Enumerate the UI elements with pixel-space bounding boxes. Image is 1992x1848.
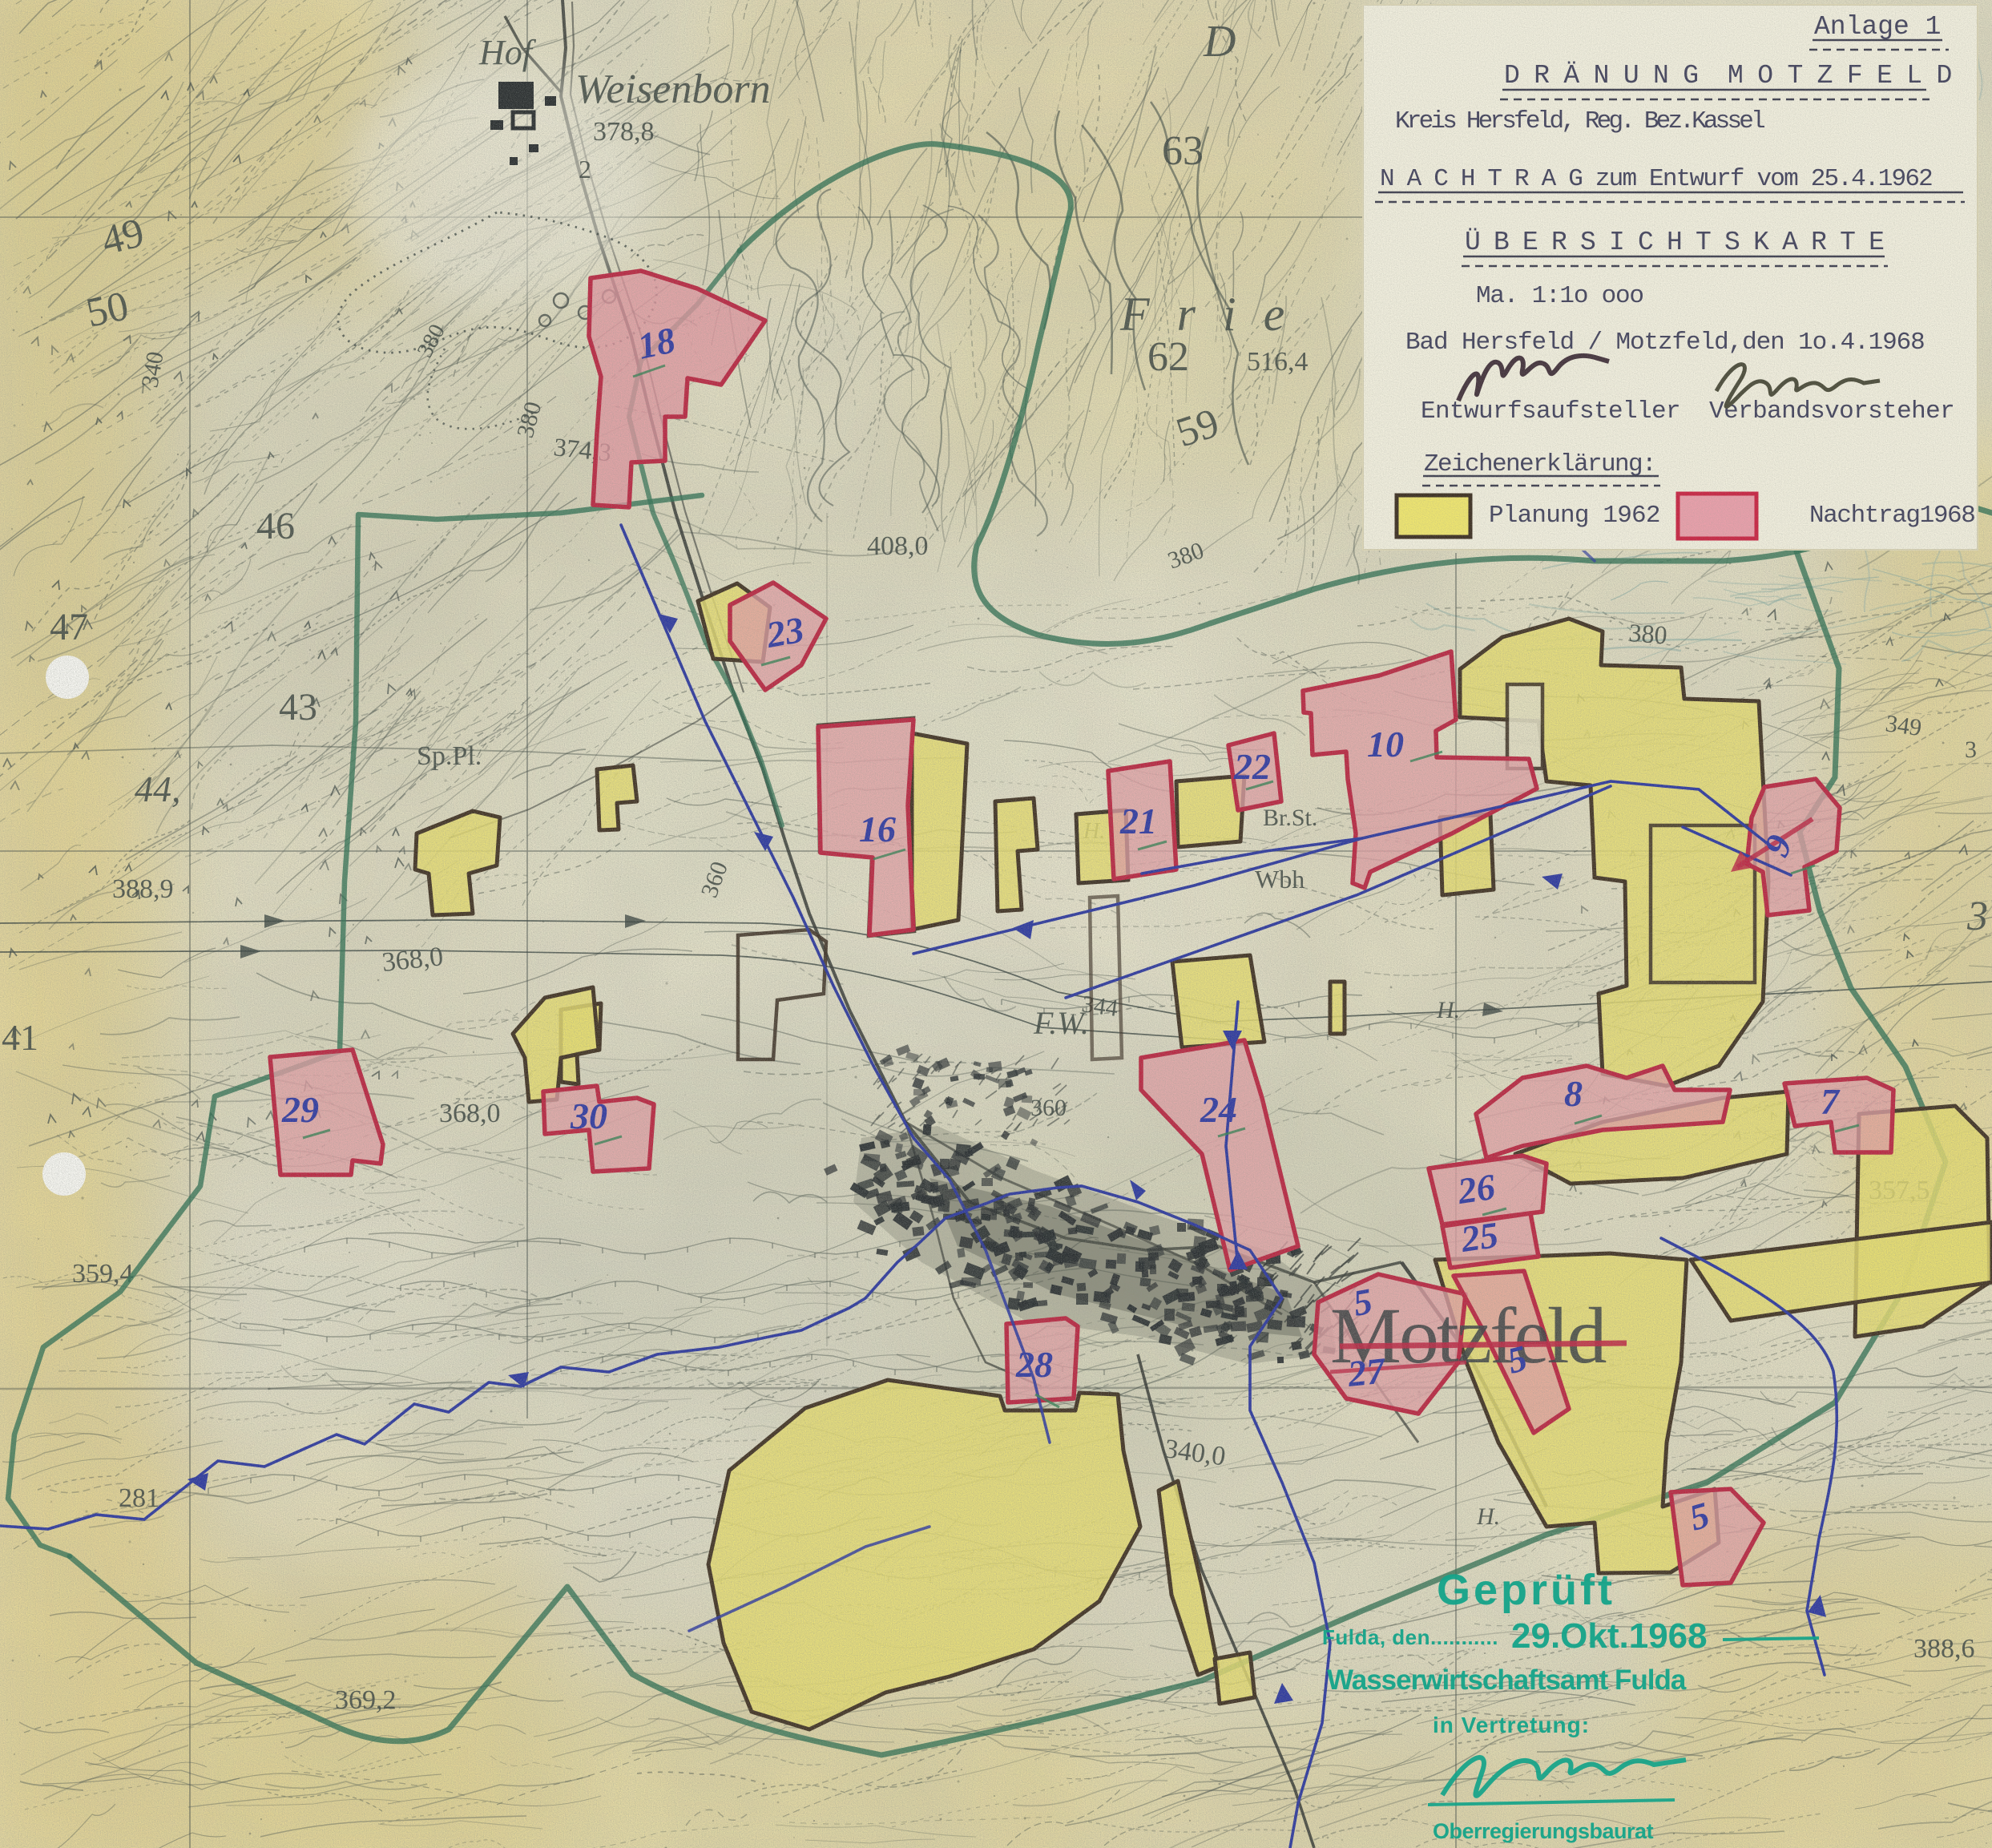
svg-text:Wasserwirtschaftsamt Fulda: Wasserwirtschaftsamt Fulda: [1327, 1664, 1687, 1696]
svg-text:Fulda, den...........: Fulda, den...........: [1322, 1625, 1498, 1649]
svg-text:29.Okt.1968: 29.Okt.1968: [1511, 1616, 1708, 1656]
svg-text:Geprüft: Geprüft: [1437, 1566, 1615, 1614]
svg-text:Oberregierungsbaurat: Oberregierungsbaurat: [1433, 1819, 1654, 1843]
svg-text:in Vertretung:: in Vertretung:: [1433, 1713, 1590, 1737]
